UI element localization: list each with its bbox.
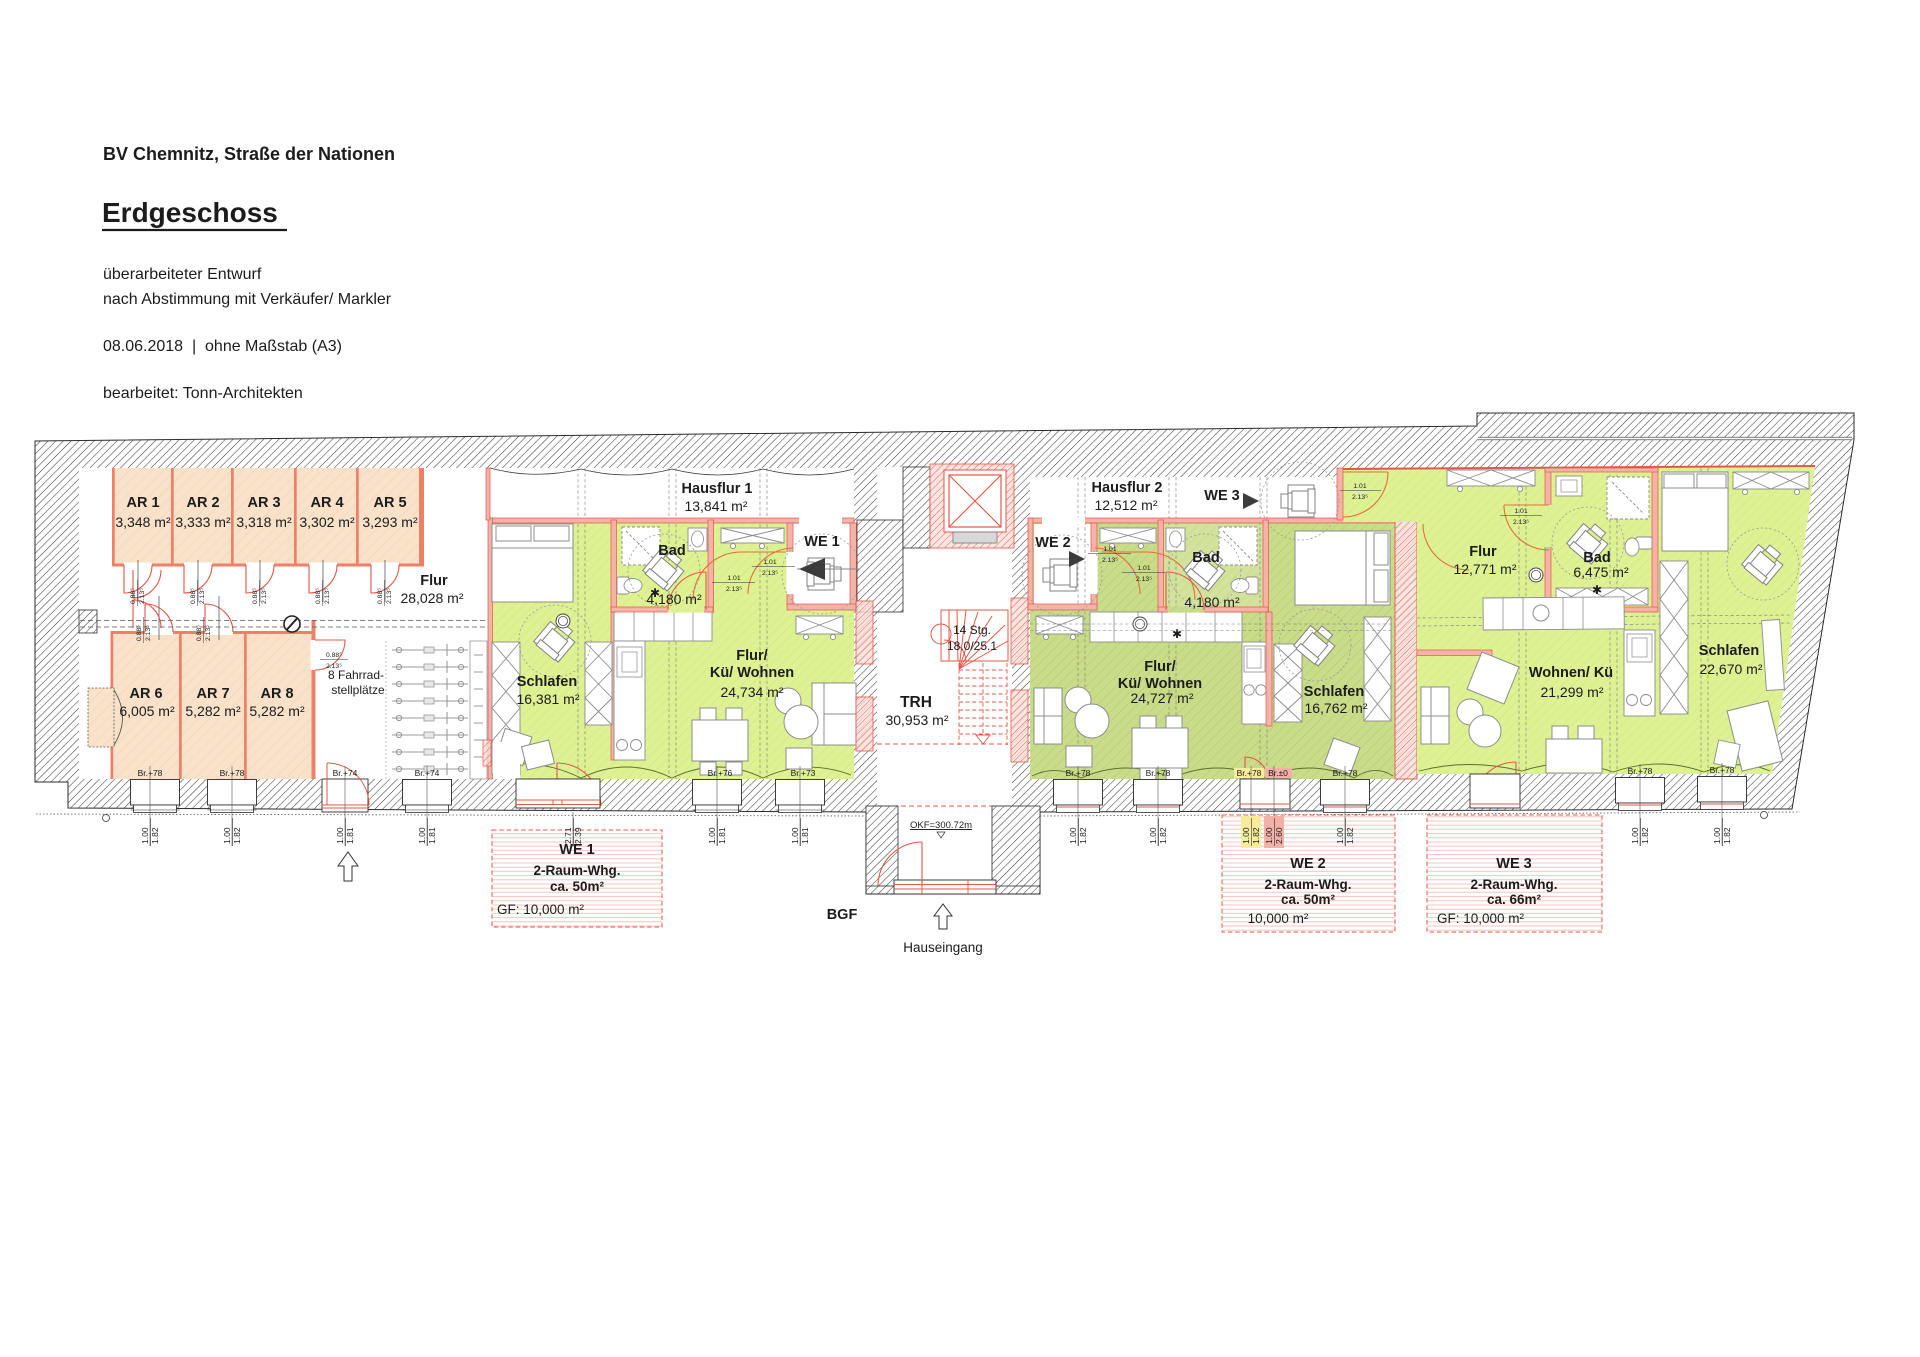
svg-text:AR 8: AR 8 (260, 686, 293, 702)
svg-text:0.88⁵: 0.88⁵ (315, 588, 322, 604)
svg-text:1.82: 1.82 (1640, 827, 1650, 844)
svg-text:GF: 10,000 m²: GF: 10,000 m² (1437, 911, 1525, 926)
svg-text:Flur: Flur (1469, 544, 1497, 560)
svg-text:WE 1: WE 1 (804, 534, 839, 550)
svg-text:5,282 m²: 5,282 m² (249, 703, 305, 719)
svg-text:1.81: 1.81 (345, 827, 355, 844)
svg-text:1.81: 1.81 (427, 827, 437, 844)
svg-text:ca. 66m²: ca. 66m² (1487, 892, 1542, 907)
svg-text:AR 7: AR 7 (196, 686, 229, 702)
svg-text:08.06.2018 | ohne Maßstab (A: 08.06.2018 | ohne Maßstab (A3) (103, 338, 342, 355)
svg-text:1.00: 1.00 (140, 827, 150, 844)
svg-text:1.82: 1.82 (1158, 827, 1168, 844)
svg-text:Schlafen: Schlafen (1304, 684, 1364, 700)
svg-text:✱: ✱ (1172, 627, 1182, 641)
svg-text:2-Raum-Whg.: 2-Raum-Whg. (534, 863, 621, 878)
svg-text:5,282 m²: 5,282 m² (185, 703, 241, 719)
svg-text:ca. 50m²: ca. 50m² (1281, 892, 1336, 907)
svg-text:1.00: 1.00 (1630, 827, 1640, 844)
svg-text:30,953 m²: 30,953 m² (885, 712, 948, 728)
svg-text:TRH: TRH (900, 694, 932, 711)
svg-text:Schlafen: Schlafen (1699, 643, 1759, 659)
svg-text:Br.±0: Br.±0 (1268, 768, 1288, 778)
svg-text:1.00: 1.00 (335, 827, 345, 844)
svg-text:1.00: 1.00 (1712, 827, 1722, 844)
svg-text:nach Abstimmung mit Verkäufer/: nach Abstimmung mit Verkäufer/ Markler (103, 291, 392, 308)
svg-text:22,670 m²: 22,670 m² (1699, 661, 1762, 677)
svg-text:2.13⁵: 2.13⁵ (199, 588, 206, 604)
svg-text:1.01: 1.01 (1103, 546, 1116, 553)
svg-text:1.00: 1.00 (1148, 827, 1158, 844)
svg-text:2.13⁵: 2.13⁵ (1136, 576, 1152, 583)
svg-text:2.13⁵: 2.13⁵ (261, 588, 268, 604)
svg-text:überarbeiteter Entwurf: überarbeiteter Entwurf (103, 266, 262, 283)
svg-text:1.81: 1.81 (717, 827, 727, 844)
svg-text:1.81: 1.81 (800, 827, 810, 844)
svg-text:3,348 m²: 3,348 m² (115, 514, 171, 530)
svg-text:AR 3: AR 3 (247, 495, 280, 511)
svg-text:2.13⁵: 2.13⁵ (1513, 519, 1529, 526)
svg-text:Hausflur 2: Hausflur 2 (1092, 480, 1163, 496)
svg-text:0.88⁵: 0.88⁵ (326, 652, 342, 659)
svg-text:1.82: 1.82 (232, 827, 242, 844)
svg-text:ca. 50m²: ca. 50m² (550, 879, 605, 894)
svg-text:0.88⁵: 0.88⁵ (130, 588, 137, 604)
svg-text:Br.+76: Br.+76 (708, 768, 733, 778)
svg-text:1.82: 1.82 (1078, 827, 1088, 844)
svg-text:2.13⁵: 2.13⁵ (726, 586, 742, 593)
svg-text:6,005 m²: 6,005 m² (119, 703, 175, 719)
svg-text:AR 2: AR 2 (186, 495, 219, 511)
svg-text:14 Stg.: 14 Stg. (953, 623, 991, 637)
svg-text:2.13⁵: 2.13⁵ (205, 625, 212, 641)
svg-text:0.88⁵: 0.88⁵ (377, 588, 384, 604)
svg-text:18.0/25.1: 18.0/25.1 (947, 639, 997, 653)
svg-text:2.13⁵: 2.13⁵ (145, 625, 152, 641)
svg-text:12,512 m²: 12,512 m² (1094, 497, 1157, 513)
svg-text:2-Raum-Whg.: 2-Raum-Whg. (1265, 877, 1352, 892)
svg-text:0.88⁵: 0.88⁵ (190, 588, 197, 604)
svg-text:3,293 m²: 3,293 m² (362, 514, 418, 530)
svg-text:12,771 m²: 12,771 m² (1453, 561, 1516, 577)
svg-text:WE 3: WE 3 (1496, 856, 1531, 872)
svg-text:2.60: 2.60 (1274, 827, 1284, 844)
svg-text:2.13⁵: 2.13⁵ (324, 588, 331, 604)
svg-text:24,727 m²: 24,727 m² (1130, 690, 1193, 706)
svg-text:AR 1: AR 1 (126, 495, 159, 511)
svg-text:1.00: 1.00 (1241, 827, 1251, 844)
svg-text:28,028 m²: 28,028 m² (400, 590, 463, 606)
svg-text:Hausflur 1: Hausflur 1 (682, 481, 753, 497)
svg-text:Bad: Bad (1192, 550, 1219, 566)
svg-text:1.01: 1.01 (1137, 565, 1150, 572)
svg-text:2.13⁵: 2.13⁵ (1352, 494, 1368, 501)
svg-text:21,299 m²: 21,299 m² (1540, 684, 1603, 700)
svg-text:6,475 m²: 6,475 m² (1573, 564, 1629, 580)
svg-text:1.01: 1.01 (763, 559, 776, 566)
svg-text:2.13⁵: 2.13⁵ (139, 588, 146, 604)
svg-text:Kü/ Wohnen: Kü/ Wohnen (710, 665, 794, 681)
svg-text:3,302 m²: 3,302 m² (299, 514, 355, 530)
svg-text:1.00: 1.00 (790, 827, 800, 844)
svg-text:AR 6: AR 6 (129, 686, 162, 702)
svg-text:Bad: Bad (658, 543, 685, 559)
svg-text:16,381 m²: 16,381 m² (516, 691, 579, 707)
svg-text:BGF: BGF (827, 907, 858, 923)
svg-text:WE 3: WE 3 (1204, 488, 1239, 504)
svg-text:24,734 m²: 24,734 m² (720, 684, 783, 700)
svg-text:10,000 m²: 10,000 m² (1248, 911, 1309, 926)
svg-text:1.00: 1.00 (707, 827, 717, 844)
svg-text:0.88⁵: 0.88⁵ (136, 625, 143, 641)
svg-text:AR 4: AR 4 (310, 495, 343, 511)
svg-text:0.88⁵: 0.88⁵ (196, 625, 203, 641)
svg-text:Wohnen/ Kü: Wohnen/ Kü (1529, 665, 1613, 681)
svg-text:0.88⁵: 0.88⁵ (252, 588, 259, 604)
svg-text:1.01: 1.01 (1514, 508, 1527, 515)
svg-text:1.00: 1.00 (222, 827, 232, 844)
svg-text:Erdgeschoss: Erdgeschoss (102, 197, 278, 228)
svg-text:2.13⁵: 2.13⁵ (1102, 557, 1118, 564)
svg-text:1.82: 1.82 (150, 827, 160, 844)
svg-text:Flur/: Flur/ (1144, 659, 1175, 675)
svg-text:16,762 m²: 16,762 m² (1304, 700, 1367, 716)
svg-text:Flur/: Flur/ (736, 648, 767, 664)
svg-text:1.00: 1.00 (1335, 827, 1345, 844)
svg-text:3,318 m²: 3,318 m² (236, 514, 292, 530)
svg-text:1.00: 1.00 (417, 827, 427, 844)
svg-text:4,180 m²: 4,180 m² (646, 591, 702, 607)
svg-text:GF: 10,000 m²: GF: 10,000 m² (497, 902, 585, 917)
svg-text:Br.+78: Br.+78 (1237, 768, 1262, 778)
svg-text:4,180 m²: 4,180 m² (1184, 594, 1240, 610)
svg-text:13,841 m²: 13,841 m² (684, 498, 747, 514)
svg-text:WE 2: WE 2 (1035, 535, 1070, 551)
svg-text:2.13⁵: 2.13⁵ (326, 663, 342, 670)
svg-text:✱: ✱ (1592, 583, 1602, 597)
svg-text:1.00: 1.00 (1264, 827, 1274, 844)
svg-text:1.82: 1.82 (1251, 827, 1261, 844)
svg-text:OKF=300.72m: OKF=300.72m (910, 820, 972, 831)
svg-text:WE 2: WE 2 (1290, 856, 1325, 872)
svg-text:1.82: 1.82 (1722, 827, 1732, 844)
svg-text:Hauseingang: Hauseingang (903, 940, 983, 955)
svg-text:2.13⁵: 2.13⁵ (386, 588, 393, 604)
svg-text:8 Fahrrad-: 8 Fahrrad- (328, 668, 384, 682)
svg-text:stellplätze: stellplätze (331, 683, 385, 697)
svg-text:1.01: 1.01 (1353, 483, 1366, 490)
svg-text:1.00: 1.00 (1068, 827, 1078, 844)
svg-text:Flur: Flur (420, 573, 448, 589)
svg-text:1.82: 1.82 (1345, 827, 1355, 844)
svg-text:1.01: 1.01 (727, 575, 740, 582)
svg-text:bearbeitet: Tonn-Architekten: bearbeitet: Tonn-Architekten (103, 385, 303, 402)
svg-text:AR 5: AR 5 (373, 495, 406, 511)
svg-text:WE 1: WE 1 (559, 842, 594, 858)
svg-text:2.13⁵: 2.13⁵ (762, 570, 778, 577)
svg-text:3,333 m²: 3,333 m² (175, 514, 231, 530)
svg-text:Br.+73: Br.+73 (791, 768, 816, 778)
svg-text:Schlafen: Schlafen (517, 674, 577, 690)
svg-text:BV Chemnitz, Straße der Nation: BV Chemnitz, Straße der Nationen (103, 144, 395, 164)
svg-text:2-Raum-Whg.: 2-Raum-Whg. (1471, 877, 1558, 892)
